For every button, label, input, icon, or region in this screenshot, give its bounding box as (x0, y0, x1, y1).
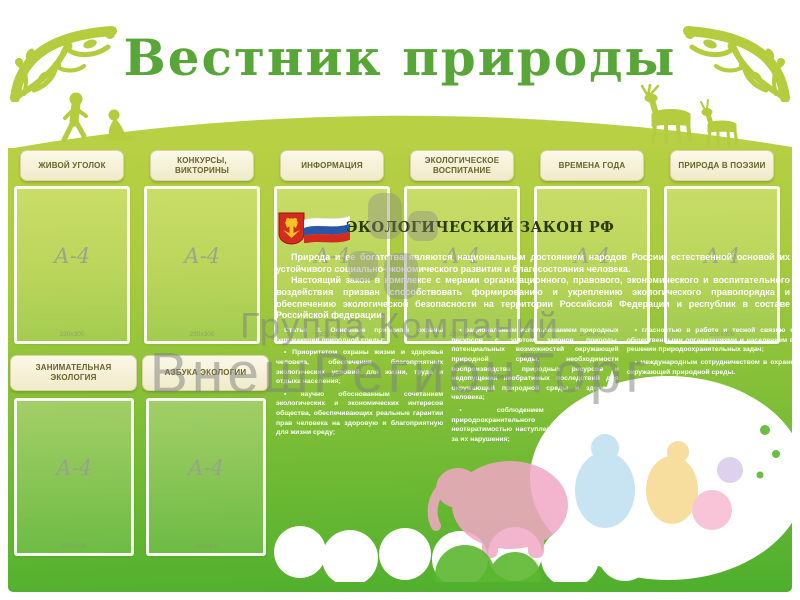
section-header-vremena-goda: ВРЕМЕНА ГОДА (540, 150, 644, 181)
page-title: Вестник природы (0, 28, 800, 87)
law-article-heading: Статья 3. Основные принципы охраны окруж… (276, 326, 443, 345)
law-bullet: • соблюдением требований природоохраните… (451, 406, 618, 445)
pocket-label: А-4 (54, 244, 90, 268)
section-header-priroda-v-poezii: ПРИРОДА В ПОЭЗИИ (670, 150, 774, 181)
deer-silhouette-icon (638, 84, 754, 148)
section-header-informatsiya: ИНФОРМАЦИЯ (280, 150, 384, 181)
pocket-size: 230x300 (147, 331, 257, 338)
section-header-konkursy: КОНКУРСЫ, ВИКТОРИНЫ (150, 150, 254, 181)
section-header-ekovospitanie: ЭКОЛОГИЧЕСКОЕ ВОСПИТАНИЕ (410, 150, 514, 181)
a4-pocket: А-4 230x300 (14, 398, 134, 556)
law-bullet: • гласностью в работе и тесной связью с … (627, 326, 794, 355)
law-intro-text: Природа и ее богатства являются национал… (276, 252, 790, 322)
pocket-size: 230x300 (17, 543, 131, 550)
nature-herald-poster: Вестник природы (0, 0, 800, 600)
section-header-zanimat-ekologiya: ЗАНИМАТЕЛЬНАЯ ЭКОЛОГИЯ (10, 355, 137, 391)
pocket-label: А-4 (56, 456, 92, 480)
law-bullet: • международным сотрудничеством в охране… (627, 358, 794, 377)
pocket-label: А-4 (188, 456, 224, 480)
a4-pocket: А-4 230x300 (144, 186, 260, 344)
section-header-zhivoy-ugolok: ЖИВОЙ УГОЛОК (20, 150, 124, 181)
section-header-azbuka-ekologii: АЗБУКА ЭКОЛОГИИ (142, 355, 269, 391)
pocket-label: А-4 (184, 244, 220, 268)
law-column-3: • гласностью в работе и тесной связью с … (627, 326, 794, 448)
law-bullet: • рациональным использованием природных … (451, 326, 618, 403)
law-paragraph: Природа и ее богатства являются национал… (276, 252, 790, 275)
a4-pocket: А-4 230x300 (146, 398, 266, 556)
board-background: ЖИВОЙ УГОЛОК КОНКУРСЫ, ВИКТОРИНЫ ИНФОРМА… (8, 148, 792, 592)
law-column-1: Статья 3. Основные принципы охраны окруж… (276, 326, 443, 448)
a4-pocket: А-4 230x300 (14, 186, 130, 344)
law-title: ЭКОЛОГИЧЕСКИЙ ЗАКОН РФ (346, 219, 614, 236)
children-silhouette-icon (30, 90, 148, 148)
pocket-size: 230x300 (17, 331, 127, 338)
law-bullet: • Приоритетом охраны жизни и здоровья че… (276, 348, 443, 387)
coat-of-arms-icon (278, 212, 305, 245)
russian-flag-icon (304, 216, 350, 243)
law-column-2: • рациональным использованием природных … (451, 326, 618, 448)
law-bullet: • научно обоснованным сочетанием экологи… (276, 390, 443, 438)
law-paragraph: Настоящий закон в комплексе с мерами орг… (276, 275, 790, 322)
law-principles-columns: Статья 3. Основные принципы охраны окруж… (276, 326, 794, 448)
pocket-size: 230x300 (149, 543, 263, 550)
